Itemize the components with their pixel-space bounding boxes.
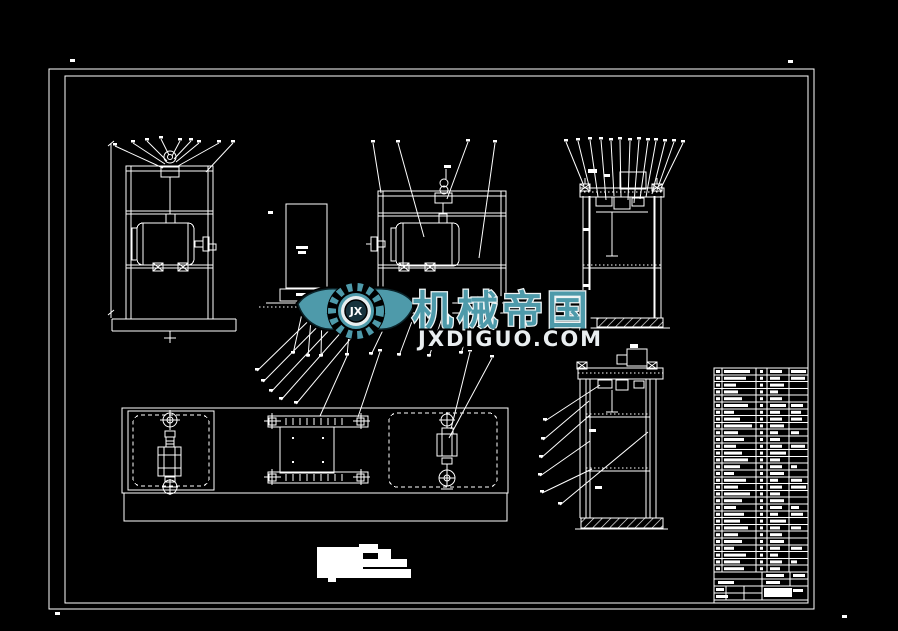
logo-monogram: JX xyxy=(349,305,363,318)
cad-canvas: JX 机械帝国 机械帝国 JXDIGUO.COM JXDIGUO.COM xyxy=(0,0,898,631)
notes-block xyxy=(317,544,411,582)
plan-view xyxy=(122,408,508,521)
bom-table xyxy=(714,368,808,603)
watermark-logo: JX xyxy=(298,282,414,340)
cad-drawing-viewport: JX 机械帝国 机械帝国 JXDIGUO.COM JXDIGUO.COM xyxy=(0,0,898,631)
site-text: JXDIGUO.COM xyxy=(416,327,603,351)
watermark-text: 机械帝国 机械帝国 JXDIGUO.COM JXDIGUO.COM xyxy=(412,287,604,352)
front-view xyxy=(108,136,236,343)
gear-icon: JX xyxy=(327,282,385,340)
tank-mid-view xyxy=(538,344,668,529)
